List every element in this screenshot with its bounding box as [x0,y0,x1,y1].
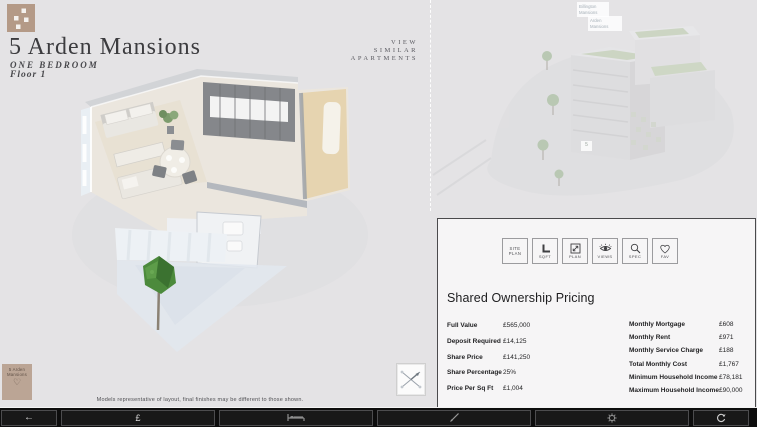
plan-button[interactable]: PLAN [562,238,588,264]
eye-icon [599,242,612,254]
site-building-label: Billington Mansions [577,2,609,17]
site-plan-button[interactable]: SITE PLAN [502,238,528,264]
site-plan-button-label: SITE PLAN [504,246,526,256]
pricing-label: Deposit Required [447,338,503,345]
app-root: 5 Arden Mansions ONE BEDROOM Floor 1 VIE… [0,0,757,427]
pricing-value: £1,004 [503,385,523,392]
view-similar-line: SIMILAR [351,47,418,55]
pricing-label: Share Price [447,354,503,361]
floor-plan-render [55,60,390,355]
ruler-corner-icon [540,242,551,254]
fav-button[interactable]: FAV [652,238,678,264]
refresh-icon [716,413,726,423]
back-arrow-icon: ← [24,413,34,423]
pricing-panel: SITE PLAN SQFT PLAN [437,218,756,408]
pricing-row: Full Value£565,000 [447,314,530,330]
compass-card [396,363,426,396]
site-overview-render[interactable]: Billington Mansions Arden Mansions 5 [431,0,757,211]
pricing-row: Maximum Household Income£90,000 [629,379,743,392]
heart-icon [659,242,671,254]
sqft-button[interactable]: SQFT [532,238,558,264]
pricing-row: Share Percentage25% [447,361,530,377]
site-building-label: Arden Mansions [588,16,622,31]
pricing-row: Monthly Service Charge£188 [629,339,743,352]
pricing-label: Maximum Household Income [629,387,719,394]
pricing-value: £141,250 [503,354,530,361]
pricing-row: Monthly Rent£971 [629,326,743,339]
fav-button-label: FAV [661,255,669,260]
settings-tab-button[interactable] [535,410,689,426]
plan-button-label: PLAN [569,255,581,260]
pricing-column-left: Full Value£565,000 Deposit Required£14,1… [447,314,530,393]
pricing-label: Price Per Sq Ft [447,385,503,392]
pricing-value: £90,000 [719,387,743,394]
pricing-row: Price Per Sq Ft£1,004 [447,377,530,393]
spec-button-label: SPEC [629,255,642,260]
compass-icon [397,364,425,395]
expand-plan-icon [570,242,581,254]
pricing-value: £565,000 [503,322,530,329]
pricing-row: Minimum Household Income£78,181 [629,366,743,379]
bedrooms-tab-button[interactable] [219,410,373,426]
page-title: 5 Arden Mansions [9,34,201,61]
floor-label: Floor 1 [10,70,46,80]
heart-icon: ♡ [2,377,32,388]
pricing-value: £14,125 [503,338,527,345]
brand-logo-icon [7,4,35,32]
draw-tab-button[interactable] [377,410,531,426]
spec-button[interactable]: SPEC [622,238,648,264]
pricing-label: Share Percentage [447,369,503,376]
apartment-thumbnail[interactable]: 5 Arden Mansions ♡ [2,364,32,400]
bed-icon [287,413,305,422]
pricing-row: Share Price£141,250 [447,346,530,362]
pricing-row: Total Monthly Cost£1,767 [629,353,743,366]
bottom-toolbar: ← £ [0,407,757,427]
views-button-label: VIEWS [598,255,613,260]
panel-icon-row: SITE PLAN SQFT PLAN [502,238,678,264]
pricing-tab-button[interactable]: £ [61,410,215,426]
view-similar-line: VIEW [351,39,418,47]
pricing-heading: Shared Ownership Pricing [447,291,595,305]
back-button[interactable]: ← [1,410,57,426]
gear-icon [607,413,617,423]
reset-button[interactable] [693,410,749,426]
brand-logo[interactable] [7,4,35,32]
sqft-button-label: SQFT [539,255,551,260]
pricing-value: 25% [503,369,516,376]
disclaimer-text: Models representative of layout, final f… [0,397,400,403]
pencil-icon [449,412,460,423]
pricing-label: Full Value [447,322,503,329]
magnifier-icon [630,242,641,254]
pound-icon: £ [135,413,140,423]
thumbnail-label: 5 Arden Mansions [2,367,32,377]
pricing-row: Monthly Mortgage£608 [629,313,743,326]
site-unit-tag: 5 [581,141,592,151]
site-overview-illustration [431,0,757,211]
pricing-row: Deposit Required£14,125 [447,330,530,346]
views-button[interactable]: VIEWS [592,238,618,264]
pricing-column-right: Monthly Mortgage£608 Monthly Rent£971 Mo… [629,313,743,392]
